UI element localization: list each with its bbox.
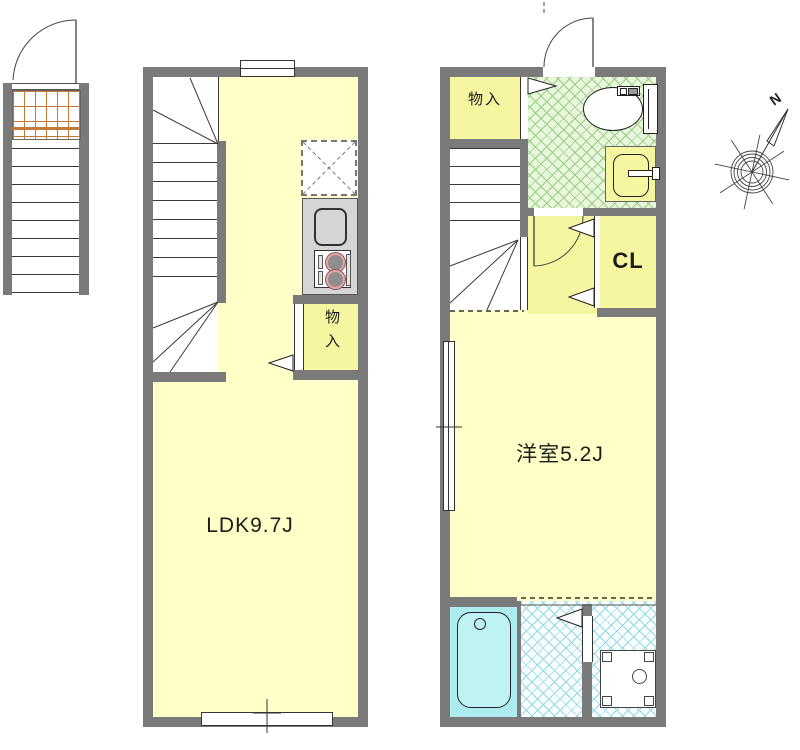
grating-porch	[12, 90, 81, 140]
cl-label: CL	[600, 248, 656, 274]
kitchen-sink	[314, 208, 347, 246]
toilet-controls-btn2	[628, 88, 638, 95]
external-stair-left-wall	[3, 83, 12, 295]
bathtub-drain	[474, 618, 486, 630]
wm-drain	[632, 669, 647, 684]
north-label: N	[767, 90, 784, 109]
toilet-controls-btn	[620, 88, 627, 95]
wm-corner-4	[644, 696, 654, 706]
partition-stub	[582, 604, 592, 616]
compass: N	[715, 90, 789, 210]
closet-top-wall	[293, 295, 358, 304]
stairs-straight-run	[153, 143, 217, 296]
external-stairs	[12, 148, 79, 295]
closet-bottom-wall	[293, 370, 358, 380]
wm-corner-2	[644, 652, 654, 662]
window-bottom	[201, 712, 333, 726]
western-room-label: 洋室5.2J	[500, 438, 620, 468]
stairs-2-open-edge	[520, 237, 528, 310]
toilet-tank-line	[648, 89, 649, 129]
toilet-tank	[643, 84, 658, 134]
wm-corner-3	[602, 696, 612, 706]
overlay-graphics: N	[0, 0, 800, 750]
hall	[528, 216, 600, 314]
stairs-2-run	[450, 148, 520, 238]
stove-slot-1	[318, 255, 323, 269]
storage-closet-1-label: 物入	[321, 309, 342, 369]
stairs-2-winder	[450, 237, 520, 310]
stove-slot-2	[318, 271, 323, 285]
window-left-2f	[443, 341, 455, 511]
stairs-side-wall	[217, 141, 226, 303]
stairs-winder-top	[153, 77, 219, 143]
cl-bottom-wall	[597, 308, 656, 317]
window-top-line	[240, 68, 295, 69]
external-stair-sill	[12, 83, 79, 90]
washbasin-tap	[652, 167, 660, 180]
north-arrow-head	[767, 109, 788, 146]
stove-burner-2	[326, 270, 345, 289]
stove-slot-3	[346, 254, 351, 286]
closet-door	[294, 304, 304, 370]
partition-wall	[582, 662, 592, 717]
storage-closet-2-label: 物入	[455, 88, 515, 109]
bath-top-wall	[450, 597, 517, 607]
storage-2-bottom-wall	[450, 139, 528, 148]
external-door-swing-arc	[13, 20, 76, 80]
grating-edge	[12, 127, 79, 130]
wm-corner-1	[602, 652, 612, 662]
ldk-label: LDK9.7J	[180, 514, 320, 538]
stairs-bottom-wall	[153, 372, 226, 382]
stairs-2-side-wall	[520, 148, 528, 237]
washbasin-faucet	[628, 170, 655, 177]
entrance-door-swing-arc	[544, 18, 593, 67]
north-arrow-shaft	[752, 109, 788, 172]
window-left-2f-line	[448, 342, 449, 510]
stairs-winder-bottom	[153, 295, 217, 372]
washroom-door-opening	[534, 208, 583, 216]
refrigerator-space	[301, 140, 357, 196]
compass-spokes	[715, 135, 789, 209]
washroom-door-leaf	[582, 616, 593, 662]
